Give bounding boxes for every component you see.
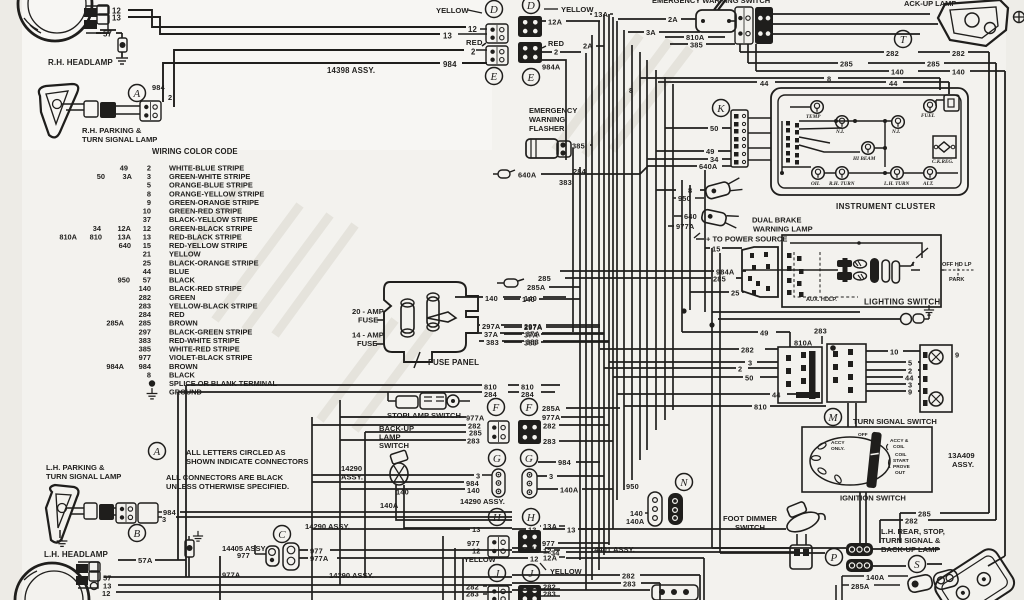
svg-text:283: 283: [814, 327, 827, 336]
svg-text:TURN SIGNAL LAMP: TURN SIGNAL LAMP: [46, 472, 121, 481]
svg-text:984: 984: [558, 458, 572, 467]
svg-text:140A: 140A: [380, 501, 399, 510]
svg-text:140: 140: [952, 68, 965, 77]
svg-text:9: 9: [955, 351, 959, 360]
svg-text:2: 2: [554, 48, 558, 57]
svg-text:TEMP: TEMP: [806, 114, 821, 120]
svg-text:140: 140: [891, 68, 904, 77]
svg-text:WARNING: WARNING: [529, 115, 565, 124]
svg-text:A: A: [153, 446, 161, 458]
svg-text:START: START: [893, 458, 909, 464]
svg-text:WARNING LAMP: WARNING LAMP: [753, 225, 813, 234]
svg-text:13: 13: [567, 526, 576, 535]
svg-text:OIL: OIL: [811, 181, 820, 187]
svg-text:AUX. HDLP.: AUX. HDLP.: [806, 297, 837, 303]
svg-text:3A: 3A: [123, 172, 133, 181]
svg-text:YELLOW: YELLOW: [561, 5, 594, 14]
svg-text:IGNITION SWITCH: IGNITION SWITCH: [840, 494, 906, 503]
svg-text:984: 984: [152, 83, 166, 92]
svg-text:YELLOW: YELLOW: [436, 6, 469, 15]
svg-text:C.K.REG.: C.K.REG.: [932, 159, 953, 165]
svg-text:950: 950: [626, 482, 639, 491]
svg-text:285: 285: [927, 60, 940, 69]
svg-text:13A409: 13A409: [948, 451, 975, 460]
svg-text:+ TO POWER SOURCE: + TO POWER SOURCE: [706, 235, 787, 244]
svg-text:140A: 140A: [560, 486, 579, 495]
svg-text:140A: 140A: [626, 517, 645, 526]
svg-text:3: 3: [748, 359, 752, 368]
svg-text:810A: 810A: [794, 339, 813, 348]
svg-text:FUSE: FUSE: [357, 339, 377, 348]
svg-text:50: 50: [97, 172, 105, 181]
svg-text:N.I.: N.I.: [891, 129, 900, 135]
svg-text:984: 984: [443, 60, 457, 69]
svg-text:10: 10: [890, 348, 899, 357]
svg-text:13: 13: [112, 14, 122, 23]
svg-text:ACCY &: ACCY &: [890, 438, 909, 444]
svg-text:ALL CONNECTORS ARE BLACK: ALL CONNECTORS ARE BLACK: [166, 473, 284, 482]
svg-text:2: 2: [471, 48, 476, 57]
svg-text:12: 12: [102, 589, 111, 598]
svg-text:34: 34: [551, 549, 560, 558]
svg-text:G: G: [493, 453, 501, 465]
svg-text:FUEL: FUEL: [921, 113, 935, 119]
svg-text:140A: 140A: [866, 573, 885, 582]
svg-text:44: 44: [889, 79, 898, 88]
svg-text:140: 140: [522, 295, 535, 304]
svg-text:285: 285: [538, 274, 551, 283]
svg-text:285: 285: [713, 275, 726, 284]
svg-text:284: 284: [484, 390, 498, 399]
svg-text:13: 13: [528, 526, 537, 535]
svg-text:OFF HD LP: OFF HD LP: [942, 262, 972, 268]
svg-text:810: 810: [90, 232, 102, 241]
svg-text:383: 383: [486, 338, 499, 347]
svg-text:L.H. REAR, STOP,: L.H. REAR, STOP,: [881, 527, 945, 536]
svg-text:49: 49: [760, 329, 769, 338]
svg-text:283: 283: [466, 590, 479, 599]
svg-text:50: 50: [745, 374, 754, 383]
svg-text:PROVE: PROVE: [893, 464, 911, 470]
svg-text:H: H: [526, 512, 536, 524]
svg-text:F: F: [492, 402, 500, 414]
svg-text:PARK: PARK: [949, 277, 964, 283]
svg-text:TURN SIGNAL &: TURN SIGNAL &: [881, 536, 941, 545]
svg-text:E: E: [490, 71, 498, 83]
svg-text:F: F: [525, 402, 533, 414]
svg-text:984A: 984A: [106, 362, 124, 371]
svg-text:977A: 977A: [222, 571, 241, 580]
svg-text:13A: 13A: [594, 10, 609, 19]
svg-text:STOPLAMP SWITCH: STOPLAMP SWITCH: [387, 411, 461, 420]
svg-text:M: M: [827, 412, 838, 424]
svg-text:FLASHER: FLASHER: [529, 124, 565, 133]
svg-text:DUAL BRAKE: DUAL BRAKE: [752, 216, 801, 225]
svg-text:950: 950: [678, 194, 691, 203]
svg-text:2A: 2A: [668, 15, 678, 24]
svg-text:TURN SIGNAL LAMP: TURN SIGNAL LAMP: [82, 135, 157, 144]
svg-text:283: 283: [467, 437, 480, 446]
svg-text:640A: 640A: [518, 171, 537, 180]
svg-text:INSTRUMENT CLUSTER: INSTRUMENT CLUSTER: [836, 202, 936, 211]
svg-text:L.H. PARKING &: L.H. PARKING &: [46, 463, 105, 472]
svg-text:G: G: [525, 453, 533, 465]
svg-text:L.H. TURN: L.H. TURN: [883, 181, 909, 187]
svg-text:640: 640: [119, 241, 131, 250]
svg-text:810: 810: [754, 403, 767, 412]
svg-text:977: 977: [237, 551, 250, 560]
svg-text:R.H. HEADLAMP: R.H. HEADLAMP: [48, 58, 113, 67]
svg-text:34: 34: [710, 155, 719, 164]
svg-text:285A: 285A: [851, 582, 870, 591]
svg-text:640: 640: [684, 212, 697, 221]
svg-text:15: 15: [712, 245, 721, 254]
svg-text:12: 12: [468, 25, 478, 34]
svg-text:3A: 3A: [646, 28, 656, 37]
svg-text:A: A: [133, 88, 141, 100]
svg-text:810A: 810A: [59, 232, 77, 241]
svg-text:L.H. HEADLAMP: L.H. HEADLAMP: [44, 550, 109, 559]
svg-text:14290 ASSY.: 14290 ASSY.: [460, 497, 505, 506]
svg-text:2: 2: [168, 93, 172, 102]
svg-text:385: 385: [690, 41, 703, 50]
svg-text:S: S: [914, 559, 920, 571]
svg-text:EMERGENCY WARNING SWITCH: EMERGENCY WARNING SWITCH: [652, 0, 770, 5]
svg-text:3: 3: [549, 472, 553, 481]
svg-text:12A: 12A: [548, 18, 563, 27]
svg-text:283: 283: [543, 590, 556, 599]
svg-text:383: 383: [524, 339, 537, 348]
svg-text:RED: RED: [466, 38, 483, 47]
svg-text:14398 ASSY.: 14398 ASSY.: [327, 66, 375, 75]
svg-text:140: 140: [467, 486, 480, 495]
svg-text:D: D: [526, 0, 535, 12]
svg-text:13: 13: [443, 32, 453, 41]
svg-text:FUSE PANEL: FUSE PANEL: [428, 358, 479, 367]
svg-text:57: 57: [103, 30, 112, 39]
svg-text:282: 282: [905, 517, 918, 526]
svg-text:FUSE: FUSE: [358, 316, 378, 325]
svg-text:COIL: COIL: [893, 444, 905, 450]
svg-text:285: 285: [918, 510, 931, 519]
svg-text:984A: 984A: [542, 63, 561, 72]
svg-text:285A: 285A: [106, 319, 124, 328]
svg-text:UNLESS OTHERWISE SPECIFIED.: UNLESS OTHERWISE SPECIFIED.: [166, 482, 289, 491]
svg-text:ASSY.: ASSY.: [341, 473, 363, 482]
svg-text:P: P: [830, 552, 838, 564]
svg-text:140: 140: [485, 294, 498, 303]
svg-text:3: 3: [162, 515, 166, 524]
svg-text:TURN SIGNAL SWITCH: TURN SIGNAL SWITCH: [853, 417, 937, 426]
svg-text:57A: 57A: [138, 556, 153, 565]
svg-text:44: 44: [772, 391, 781, 400]
svg-text:977A: 977A: [676, 222, 695, 231]
svg-text:9: 9: [908, 388, 912, 397]
svg-text:ACCY: ACCY: [831, 440, 845, 446]
svg-text:12: 12: [530, 555, 539, 564]
svg-text:8: 8: [629, 86, 633, 95]
svg-text:385: 385: [572, 142, 585, 151]
svg-text:N.I.: N.I.: [835, 129, 844, 135]
svg-text:383: 383: [559, 178, 572, 187]
svg-text:ASSY.: ASSY.: [952, 460, 974, 469]
svg-text:SWITCH: SWITCH: [735, 523, 765, 532]
svg-text:OUT: OUT: [895, 470, 905, 476]
svg-text:N: N: [679, 477, 688, 489]
svg-text:282: 282: [741, 346, 754, 355]
svg-text:14290 ASSY.: 14290 ASSY.: [329, 571, 374, 580]
svg-text:COIL: COIL: [895, 452, 907, 458]
svg-text:SHOWN INDICATE CONNECTORS: SHOWN INDICATE CONNECTORS: [186, 457, 309, 466]
svg-text:WIRING COLOR CODE: WIRING COLOR CODE: [152, 147, 238, 156]
svg-text:YELLOW: YELLOW: [464, 555, 496, 564]
svg-text:FOOT DIMMER: FOOT DIMMER: [723, 514, 778, 523]
svg-text:R.H. PARKING &: R.H. PARKING &: [82, 126, 142, 135]
svg-text:C: C: [278, 529, 286, 541]
svg-text:25: 25: [731, 289, 740, 298]
svg-text:ALT.: ALT.: [922, 181, 934, 187]
svg-text:8: 8: [147, 370, 151, 379]
svg-text:282: 282: [543, 422, 556, 431]
svg-text:285: 285: [840, 60, 853, 69]
svg-text:282: 282: [886, 49, 899, 58]
svg-text:K: K: [716, 103, 725, 115]
svg-text:SWITCH: SWITCH: [379, 441, 409, 450]
svg-text:E: E: [527, 72, 535, 84]
svg-text:44: 44: [760, 79, 769, 88]
svg-text:50: 50: [710, 124, 719, 133]
svg-text:T: T: [900, 34, 907, 46]
svg-text:2: 2: [738, 365, 742, 374]
svg-text:285A: 285A: [527, 283, 546, 292]
svg-text:ALL LETTERS CIRCLED AS: ALL LETTERS CIRCLED AS: [186, 448, 286, 457]
svg-text:B: B: [134, 528, 141, 540]
svg-text:282: 282: [952, 49, 965, 58]
svg-text:283: 283: [543, 437, 556, 446]
svg-text:283: 283: [623, 580, 636, 589]
svg-text:284: 284: [521, 390, 535, 399]
svg-text:285A: 285A: [542, 404, 561, 413]
svg-text:D: D: [489, 4, 498, 16]
svg-text:13: 13: [472, 525, 481, 534]
svg-text:HI BEAM: HI BEAM: [852, 156, 876, 162]
svg-text:EMERGENCY: EMERGENCY: [529, 106, 577, 115]
svg-text:R.H. TURN: R.H. TURN: [829, 181, 855, 187]
svg-text:ONLY.: ONLY.: [831, 446, 845, 452]
svg-text:H: H: [492, 512, 502, 524]
svg-text:OFF: OFF: [858, 432, 868, 438]
svg-text:950: 950: [118, 276, 130, 285]
